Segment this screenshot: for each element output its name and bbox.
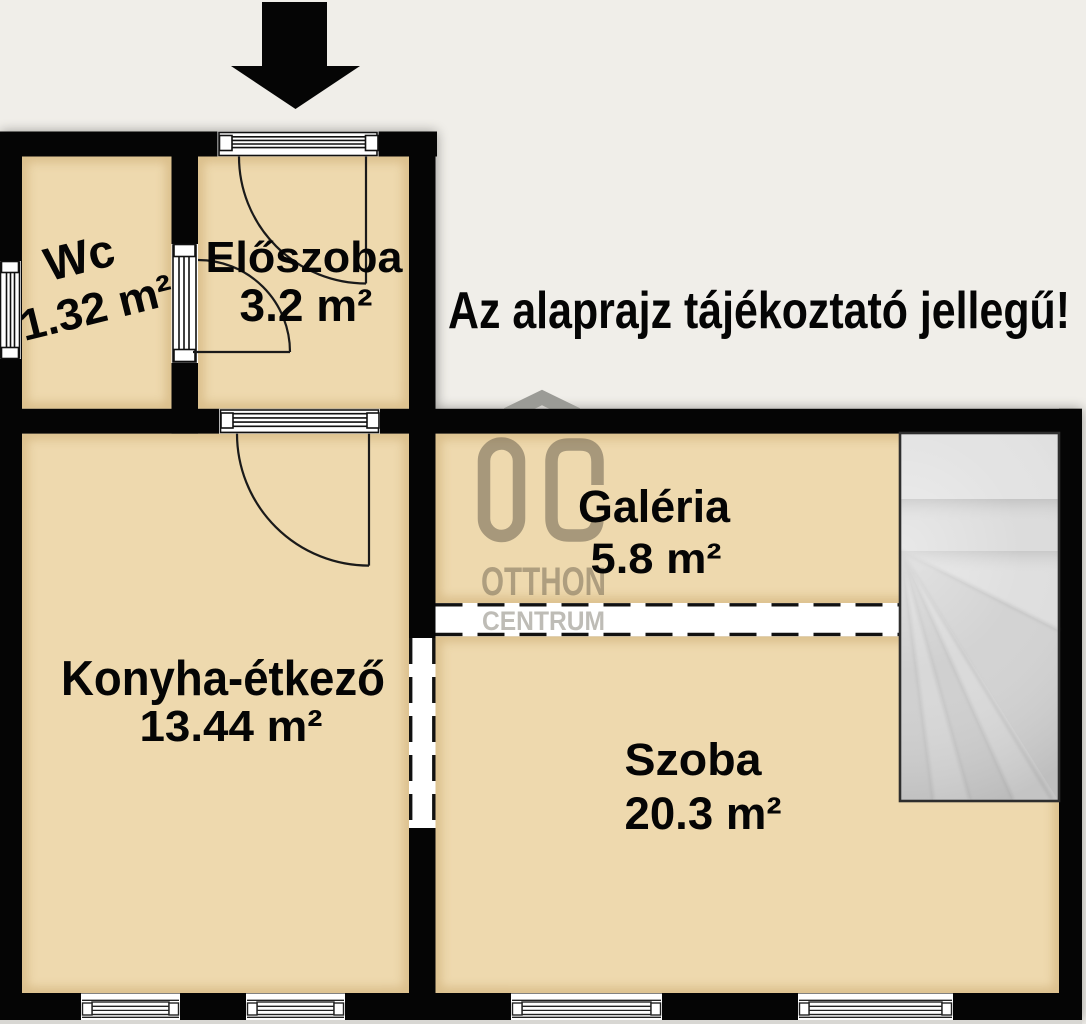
svg-text:13.44 m²: 13.44 m² <box>140 702 323 751</box>
svg-text:CENTRUM: CENTRUM <box>482 606 605 636</box>
svg-text:3.2 m²: 3.2 m² <box>240 280 373 331</box>
svg-text:OTTHON: OTTHON <box>481 560 606 604</box>
svg-text:Előszoba: Előszoba <box>206 233 404 282</box>
svg-text:20.3 m²: 20.3 m² <box>625 788 782 839</box>
svg-text:Galéria: Galéria <box>578 481 731 532</box>
svg-text:Konyha-étkező: Konyha-étkező <box>61 652 385 706</box>
svg-text:Szoba: Szoba <box>625 734 763 785</box>
svg-text:Az alaprajz tájékoztató jelleg: Az alaprajz tájékoztató jellegű! <box>448 282 1070 340</box>
svg-text:5.8 m²: 5.8 m² <box>591 535 722 583</box>
